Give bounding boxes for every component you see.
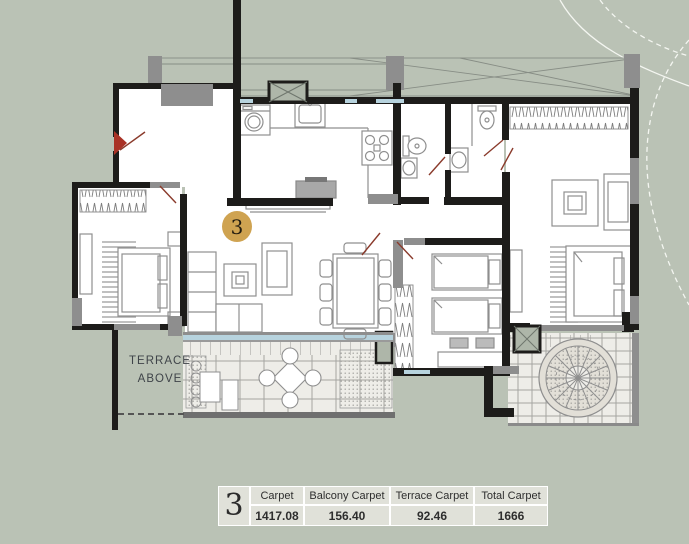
area-table-header-terrace: Terrace Carpet <box>391 487 473 504</box>
living-window-band <box>183 332 393 342</box>
area-table-value-carpet: 1417.08 <box>251 506 303 525</box>
kitchen-sink <box>295 101 325 127</box>
powder-sink <box>401 158 417 178</box>
area-table-header-total: Total Carpet <box>475 487 547 504</box>
unit-marker: 3 <box>222 211 252 242</box>
area-table-value-terrace: 92.46 <box>391 506 473 525</box>
terrace-above-line1: TERRACE <box>108 352 212 370</box>
area-table-value-total: 1666 <box>475 506 547 525</box>
balcony-paving <box>183 332 409 418</box>
area-table-header-balcony: Balcony Carpet <box>305 487 389 504</box>
powder-toilet <box>403 136 426 156</box>
master-sofa <box>604 174 632 230</box>
area-table-value-balcony: 156.40 <box>305 506 389 525</box>
area-table: 3 Carpet Balcony Carpet Terrace Carpet T… <box>218 486 548 526</box>
floor-plan-drawing <box>0 0 689 544</box>
floor-plan-sheet: 3 TERRACE ABOVE 3 Carpet Balcony Carpet … <box>0 0 689 544</box>
terrace-above-label: TERRACE ABOVE <box>108 352 212 388</box>
washing-machine <box>238 105 270 135</box>
area-table-unit-number: 3 <box>219 487 249 525</box>
kitchen-stove <box>362 131 392 165</box>
area-table-header-carpet: Carpet <box>251 487 303 504</box>
terrace-mandala <box>539 339 617 417</box>
master-bed <box>550 246 634 328</box>
terrace-above-line2: ABOVE <box>108 370 212 388</box>
unit-marker-number: 3 <box>231 215 244 239</box>
